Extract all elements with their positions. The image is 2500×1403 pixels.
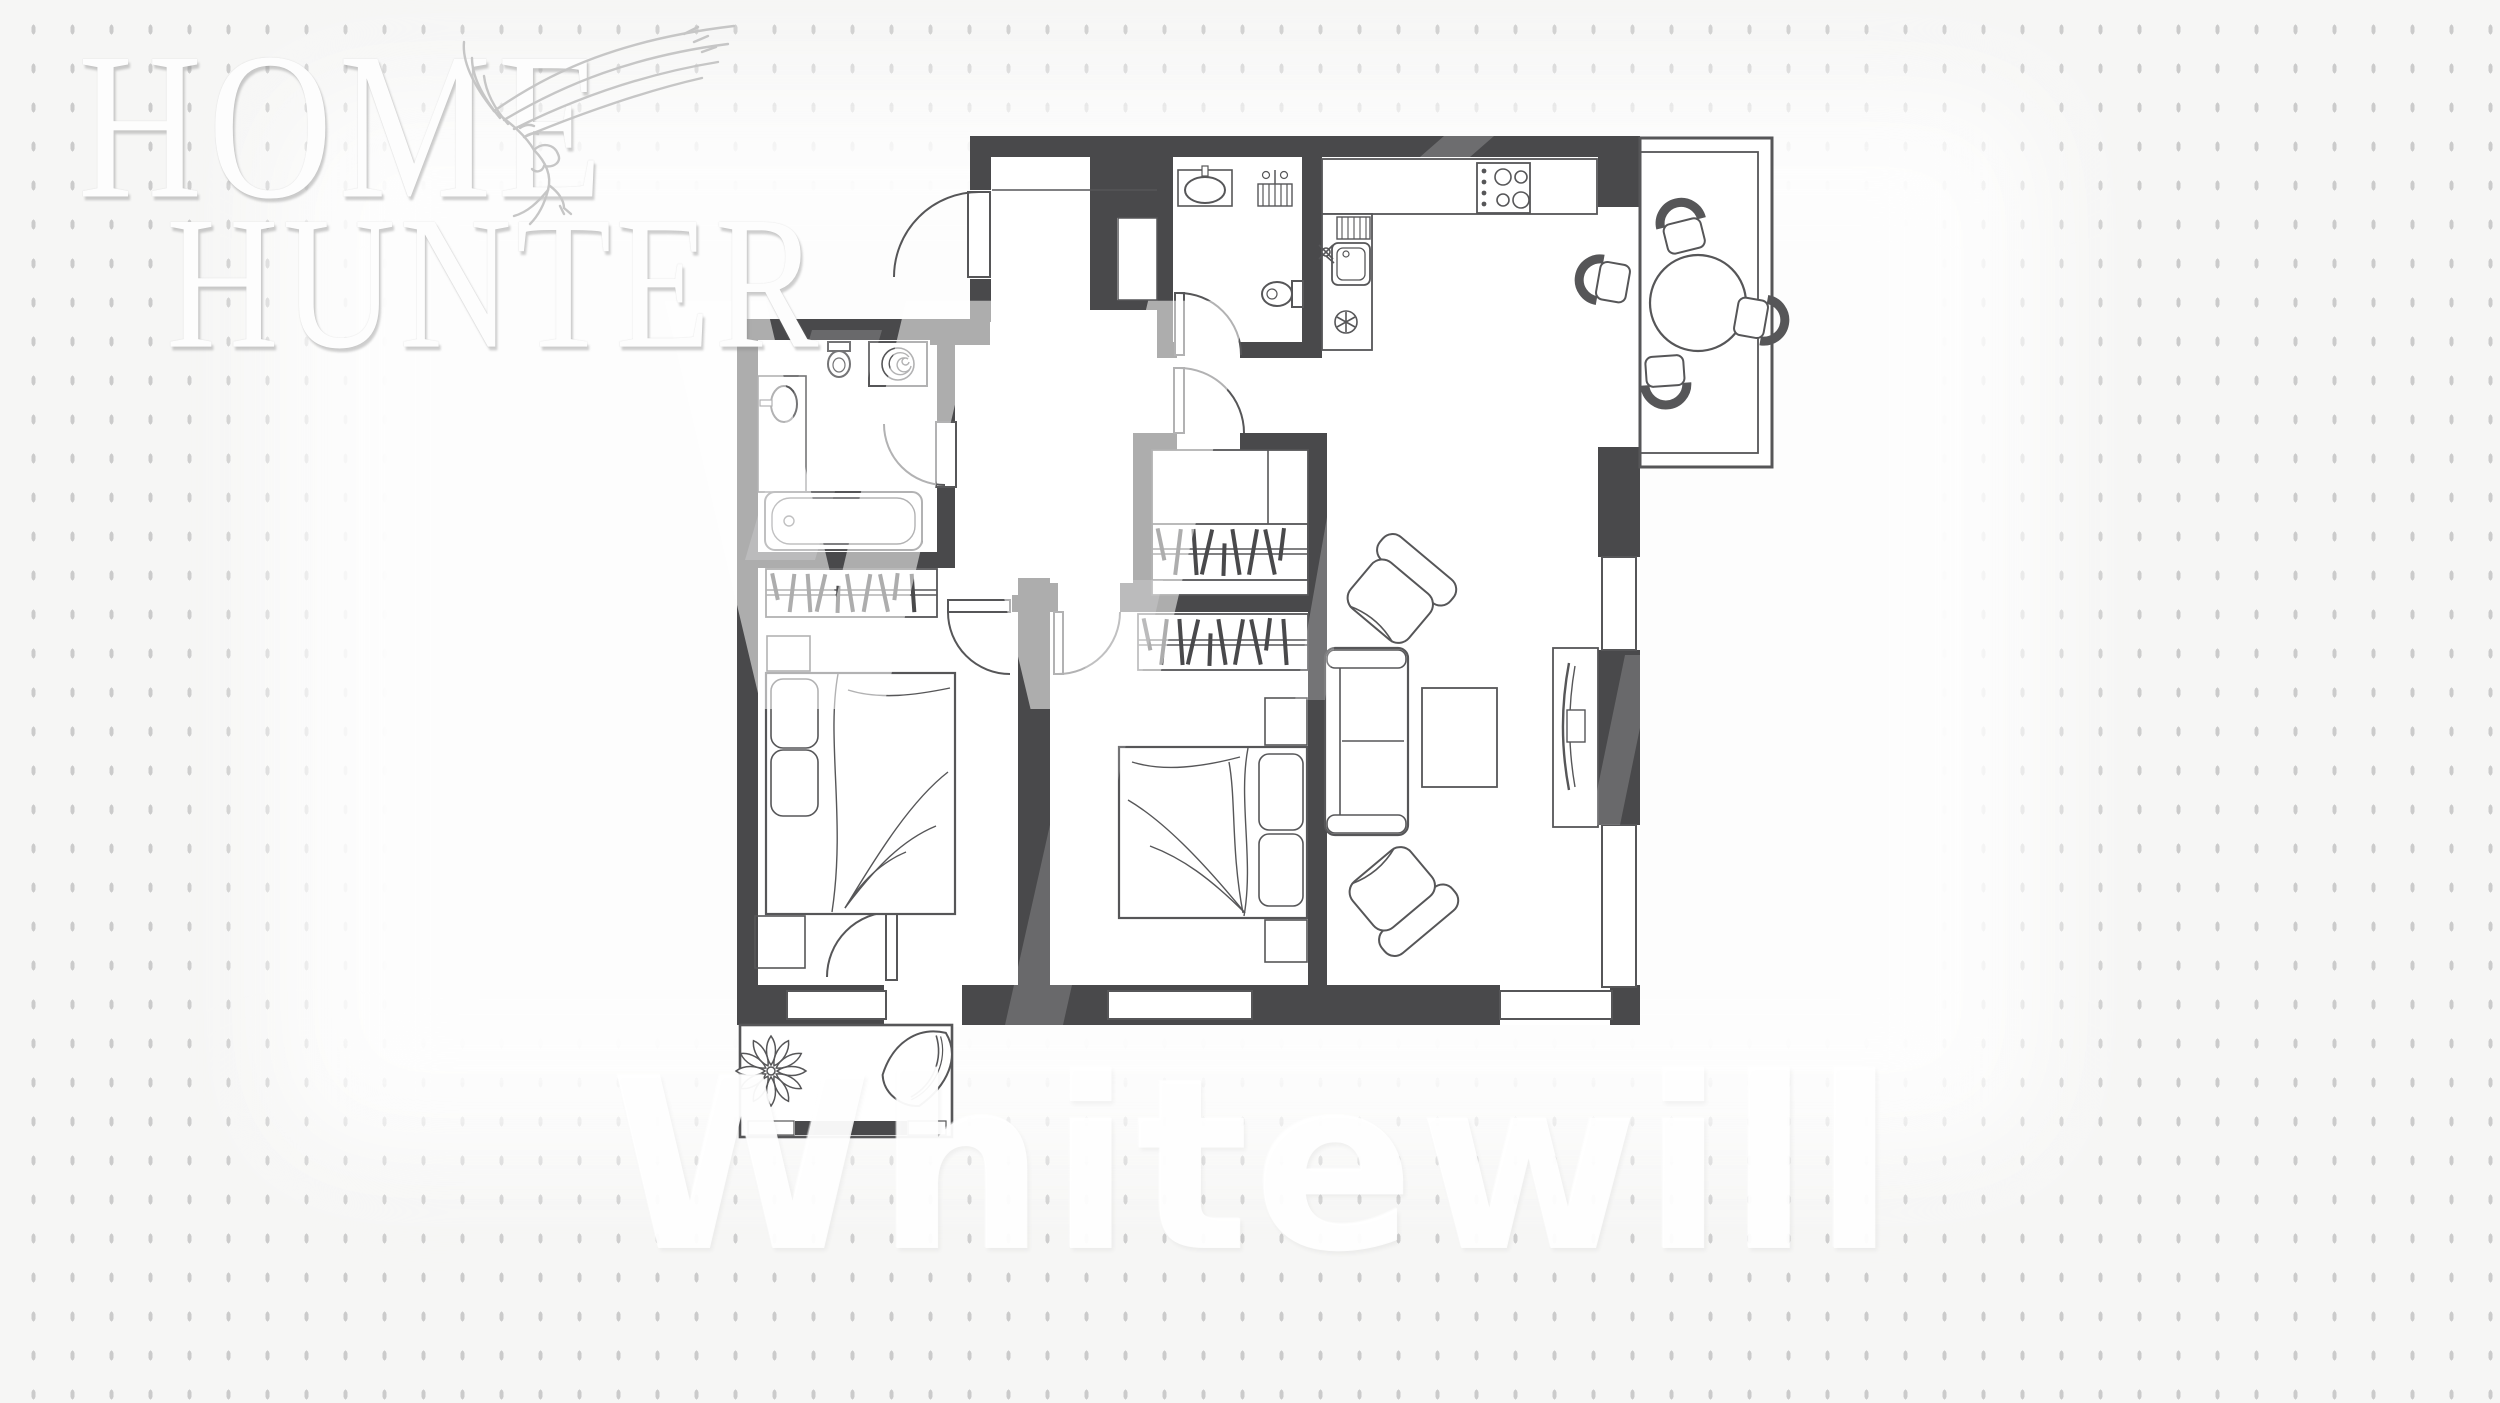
wall-duct-top — [1117, 157, 1157, 218]
sink-tap — [760, 400, 772, 406]
pillow — [1259, 754, 1303, 830]
sink2-tap — [1202, 166, 1208, 176]
dining-table — [1650, 255, 1746, 351]
wall-bath2-right — [1302, 153, 1322, 358]
bed-bedroom2 — [1119, 747, 1307, 918]
tv-bracket — [1567, 710, 1585, 742]
wall-bottom-corner-post — [1610, 985, 1640, 1025]
tv-stand — [1553, 648, 1598, 827]
balcony-door-leaf — [886, 910, 897, 980]
sink2-icon — [1185, 177, 1225, 203]
window-bedroom1 — [787, 991, 886, 1019]
kitchen-sink-drain — [1343, 251, 1349, 257]
pillow — [771, 679, 818, 748]
wall-duct-bottom — [1117, 300, 1157, 310]
balcony-rail-end — [748, 1121, 794, 1135]
entry-door-leaf — [968, 192, 990, 277]
wall-kitchen-right — [1598, 138, 1640, 207]
duct-niche — [1118, 218, 1157, 300]
toilet2-bowl — [1267, 289, 1277, 299]
kitchen-counter-top — [1322, 159, 1597, 214]
plant-center — [767, 1067, 775, 1075]
balcony-rail-end — [908, 1121, 946, 1135]
wall-closet-bottom — [1133, 595, 1327, 612]
wall-bed2-top-left — [1050, 583, 1058, 612]
pillow — [1259, 834, 1303, 906]
entry-door — [894, 192, 990, 277]
bedroom1-door-leaf — [948, 600, 1010, 612]
eagle-icon — [432, 14, 762, 229]
window-living-corner — [1602, 825, 1636, 987]
towel-hook-left — [1263, 172, 1270, 179]
vent-fan-icon — [1335, 311, 1357, 333]
window-bedroom2 — [1108, 991, 1252, 1019]
window-living-right — [1602, 557, 1636, 650]
wall-entry-above-door — [970, 157, 991, 192]
opening-balcony-door — [884, 981, 962, 1027]
bed-bedroom1 — [766, 673, 955, 914]
wall-closet-top-left — [1133, 433, 1177, 450]
bedroom2-door-leaf — [1054, 612, 1063, 674]
pillow — [771, 750, 818, 816]
wall-right-upper — [1598, 447, 1640, 557]
sofa — [1325, 648, 1408, 835]
towel-hook-right — [1281, 172, 1288, 179]
wall-bath2-left — [1157, 153, 1173, 358]
closet-door-leaf — [1174, 368, 1184, 433]
bathroom2-door-leaf — [1175, 293, 1184, 355]
kitchen-sink-inner — [1337, 248, 1365, 280]
wall-duct-left — [1090, 157, 1117, 310]
window-living-bottom — [1500, 991, 1612, 1019]
toilet2-tank — [1292, 281, 1303, 307]
wall-entry-below-door — [970, 277, 991, 322]
bathroom1-door-leaf — [936, 422, 956, 487]
wall-bath1-right-upper — [937, 340, 955, 424]
entry-door-arc — [894, 192, 979, 277]
balcony-rail — [795, 1121, 907, 1135]
